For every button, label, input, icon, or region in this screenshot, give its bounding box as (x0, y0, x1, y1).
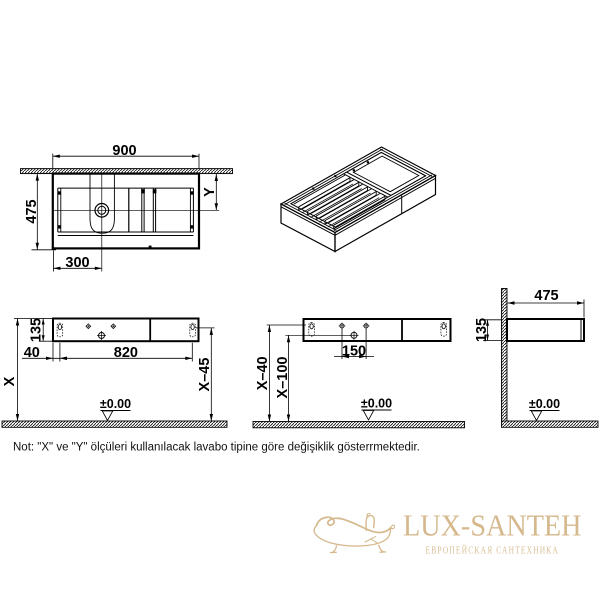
svg-text:±0.00: ±0.00 (100, 397, 131, 411)
svg-text:LUX-SANTEH: LUX-SANTEH (403, 508, 582, 543)
svg-text:135: 135 (474, 318, 490, 342)
svg-text:±0.00: ±0.00 (361, 397, 392, 411)
svg-text:820: 820 (114, 345, 138, 361)
svg-text:X: X (2, 376, 18, 386)
svg-text:40: 40 (24, 345, 40, 361)
svg-text:475: 475 (24, 199, 40, 223)
svg-text:475: 475 (534, 288, 558, 304)
svg-text:X–40: X–40 (255, 356, 271, 390)
svg-text:X–45: X–45 (197, 358, 213, 392)
svg-text:135: 135 (29, 318, 45, 342)
svg-text:Y: Y (202, 187, 218, 197)
svg-text:±0.00: ±0.00 (529, 397, 560, 411)
svg-text:ЕВРОПЕЙСКАЯ САНТЕХНИКА: ЕВРОПЕЙСКАЯ САНТЕХНИКА (426, 545, 560, 557)
svg-text:300: 300 (65, 255, 89, 271)
svg-text:Not: "X" ve "Y" ölçüleri kulla: Not: "X" ve "Y" ölçüleri kullanılacak la… (13, 442, 420, 454)
svg-text:150: 150 (342, 344, 366, 360)
svg-text:900: 900 (112, 143, 136, 159)
svg-text:X–100: X–100 (275, 357, 291, 399)
